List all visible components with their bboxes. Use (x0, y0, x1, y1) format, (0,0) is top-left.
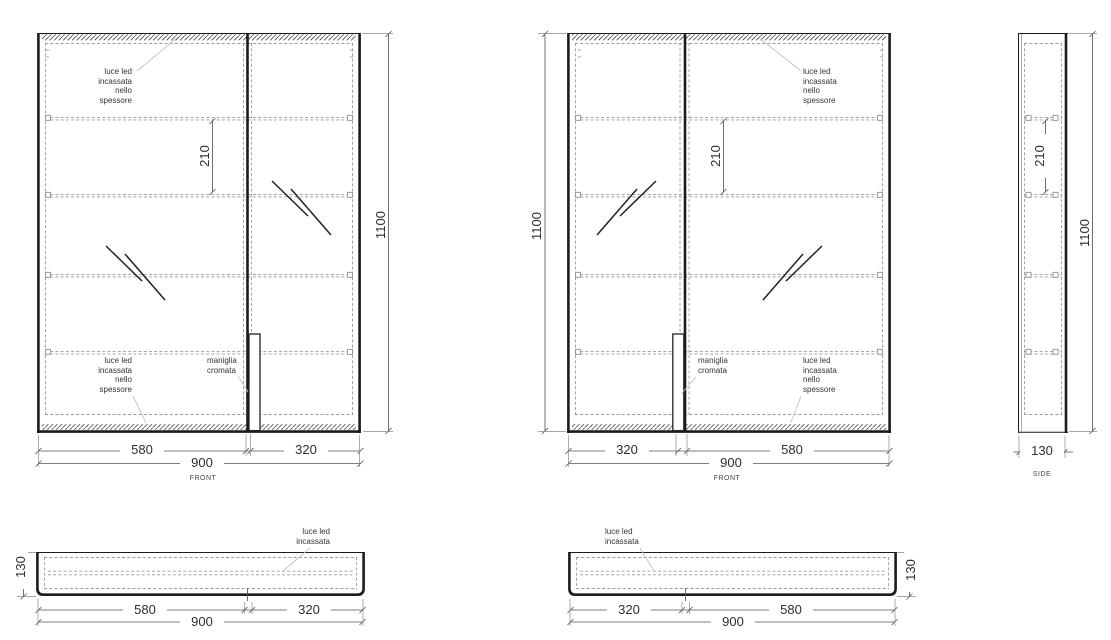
dim-height: 1100 (1078, 211, 1092, 255)
technical-drawing-canvas: luce led incassata nello spessore luce l… (0, 0, 1111, 640)
dim-width: 900 (711, 615, 755, 629)
handle-annotation: maniglia cromata (698, 356, 758, 375)
dim-right-door: 320 (287, 603, 331, 617)
dim-left-door: 320 (605, 443, 649, 457)
led-annotation: luce led incassata (258, 527, 330, 546)
dim-shelf-spacing: 210 (1033, 134, 1047, 178)
dim-left-door: 320 (607, 603, 651, 617)
view-label: FRONT (697, 475, 757, 482)
dim-height: 1100 (530, 204, 544, 248)
dim-width: 900 (180, 456, 224, 470)
dim-left-door: 580 (123, 603, 167, 617)
extension-lines (17, 34, 1097, 627)
led-annotation: luce led incassata nello spessore (62, 356, 132, 394)
drawing-linework (0, 0, 1111, 640)
led-strip-hatch (42, 34, 886, 430)
dim-right-door: 580 (769, 603, 813, 617)
dashed-hidden-lines (44, 43, 1062, 589)
dim-shelf-spacing: 210 (198, 134, 212, 178)
mirror-glass-marks (106, 181, 822, 300)
led-annotation: luce led incassata nello spessore (803, 356, 873, 394)
view-label: FRONT (173, 475, 233, 482)
dim-height: 1100 (374, 203, 388, 247)
dim-depth: 130 (14, 545, 28, 589)
led-annotation: luce led incassata nello spessore (62, 67, 132, 105)
dim-depth: 130 (904, 548, 918, 592)
dim-right-door: 580 (770, 443, 814, 457)
dim-shelf-spacing: 210 (709, 134, 723, 178)
chrome-handle (249, 334, 684, 431)
handle-annotation: maniglia cromata (207, 356, 267, 375)
dim-right-door: 320 (284, 443, 328, 457)
dim-width: 900 (709, 456, 753, 470)
view-label: SIDE (1012, 471, 1072, 478)
led-annotation: luce led incassata nello spessore (803, 67, 873, 105)
dim-width: 900 (180, 615, 224, 629)
dim-left-door: 580 (120, 443, 164, 457)
dim-depth: 130 (1020, 444, 1064, 458)
led-annotation: luce led incassata (605, 527, 677, 546)
